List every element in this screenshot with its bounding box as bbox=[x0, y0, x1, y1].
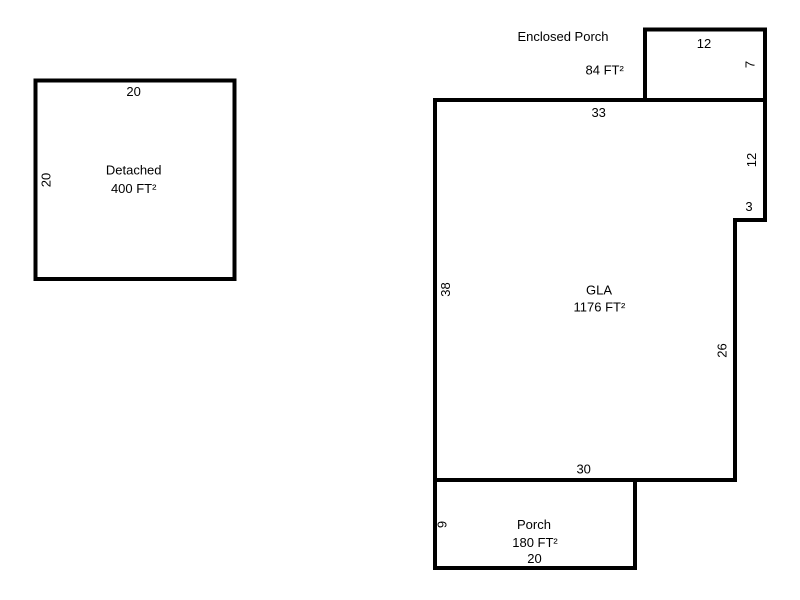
svg-text:30: 30 bbox=[576, 461, 590, 476]
svg-text:12: 12 bbox=[697, 36, 711, 51]
svg-text:Enclosed Porch: Enclosed Porch bbox=[517, 29, 608, 44]
svg-text:1176 FT²: 1176 FT² bbox=[574, 300, 626, 315]
svg-text:38: 38 bbox=[438, 282, 453, 296]
svg-text:20: 20 bbox=[527, 551, 541, 566]
svg-text:GLA: GLA bbox=[586, 282, 612, 297]
svg-text:180 FT²: 180 FT² bbox=[512, 535, 558, 550]
svg-text:Porch: Porch bbox=[517, 517, 551, 532]
svg-text:9: 9 bbox=[435, 521, 450, 528]
svg-text:7: 7 bbox=[743, 61, 758, 68]
svg-text:20: 20 bbox=[39, 173, 54, 187]
svg-text:33: 33 bbox=[591, 105, 605, 120]
svg-text:26: 26 bbox=[715, 343, 730, 357]
svg-text:Detached: Detached bbox=[106, 163, 162, 178]
svg-text:3: 3 bbox=[745, 199, 752, 214]
svg-text:20: 20 bbox=[126, 84, 140, 99]
svg-text:400 FT²: 400 FT² bbox=[111, 181, 157, 196]
svg-text:84 FT²: 84 FT² bbox=[586, 62, 625, 77]
svg-text:12: 12 bbox=[744, 153, 759, 167]
